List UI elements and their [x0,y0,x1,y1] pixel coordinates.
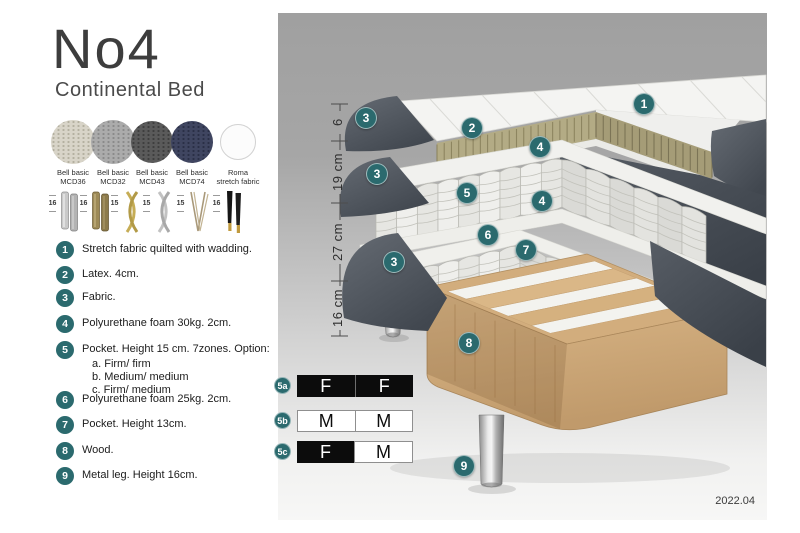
part-number-badge: 7 [56,416,74,434]
page-title: No4 [52,16,161,81]
fabric-swatch [51,120,95,164]
callout-2: 2 [461,117,483,139]
part-text: Fabric. [82,291,116,303]
page: No4 Continental Bed Bell basicMCD36 Bell… [0,0,800,533]
firmness-cell: M [297,410,356,432]
part-number-badge: 8 [56,442,74,460]
callout-3: 3 [355,107,377,129]
firmness-cell: F [297,441,354,463]
firmness-badge-5c: 5c [274,443,291,460]
callout-5: 5 [456,182,478,204]
leg-option: 15 [108,189,144,237]
part-text: Stretch fabric quilted with wadding. [82,243,252,255]
dimension-label: 16 cm [330,287,347,329]
dimension-label: 27 cm [330,221,347,263]
firmness-cell: F [355,375,414,397]
page-subtitle: Continental Bed [55,79,205,102]
dimension-label: 6 [330,112,347,133]
part-number-badge: 2 [56,266,74,284]
firmness-badge-5a: 5a [274,377,291,394]
leg-option: 16 [210,189,246,237]
firmness-bar-5c: F M [297,441,413,463]
firmness-cell: M [356,410,414,432]
fabric-swatch [171,121,213,163]
callout-9: 9 [453,455,475,477]
callout-6: 6 [477,224,499,246]
callout-7: 7 [515,239,537,261]
callout-3: 3 [383,251,405,273]
firmness-cell: M [354,441,413,463]
version-label: 2022.04 [655,495,755,507]
firmness-cell: F [297,375,355,397]
part-text: Pocket. Height 13cm. [82,418,187,430]
part-options: a. Firm/ firmb. Medium/ mediumc. Firm/ m… [92,358,189,397]
part-text: Latex. 4cm. [82,268,139,280]
firmness-bar-5b: M M [297,410,413,432]
part-text: Wood. [82,444,114,456]
part-number-badge: 5 [56,341,74,359]
dimension-label: 19 cm [330,151,347,193]
callout-8: 8 [458,332,480,354]
firmness-badge-5b: 5b [274,412,291,429]
part-number-badge: 9 [56,467,74,485]
callout-1: 1 [633,93,655,115]
part-text: Metal leg. Height 16cm. [82,469,198,481]
callout-4: 4 [531,190,553,212]
fabric-swatch [220,124,256,160]
leg-cross-silver-icon [154,189,174,235]
part-number-badge: 4 [56,315,74,333]
part-number-badge: 1 [56,241,74,259]
callout-3: 3 [366,163,388,185]
callout-4: 4 [529,136,551,158]
fabric-swatch [131,121,173,163]
leg-hairpin-icon [188,189,210,235]
leg-option: 15 [140,189,176,237]
fabric-swatch-label: Romastretch fabric [209,168,267,186]
fabric-swatch [91,120,135,164]
part-number-badge: 3 [56,289,74,307]
leg-option: 15 [174,189,210,237]
part-number-badge: 6 [56,391,74,409]
firmness-bar-5a: F F [297,375,413,397]
part-text: Pocket. Height 15 cm. 7zones. Option: [82,343,270,355]
part-text: Polyurethane foam 30kg. 2cm. [82,317,231,329]
leg-taper-black-gold-icon [224,189,246,235]
part-text: Polyurethane foam 25kg. 2cm. [82,393,231,405]
leg-cross-gold-icon [122,189,142,235]
